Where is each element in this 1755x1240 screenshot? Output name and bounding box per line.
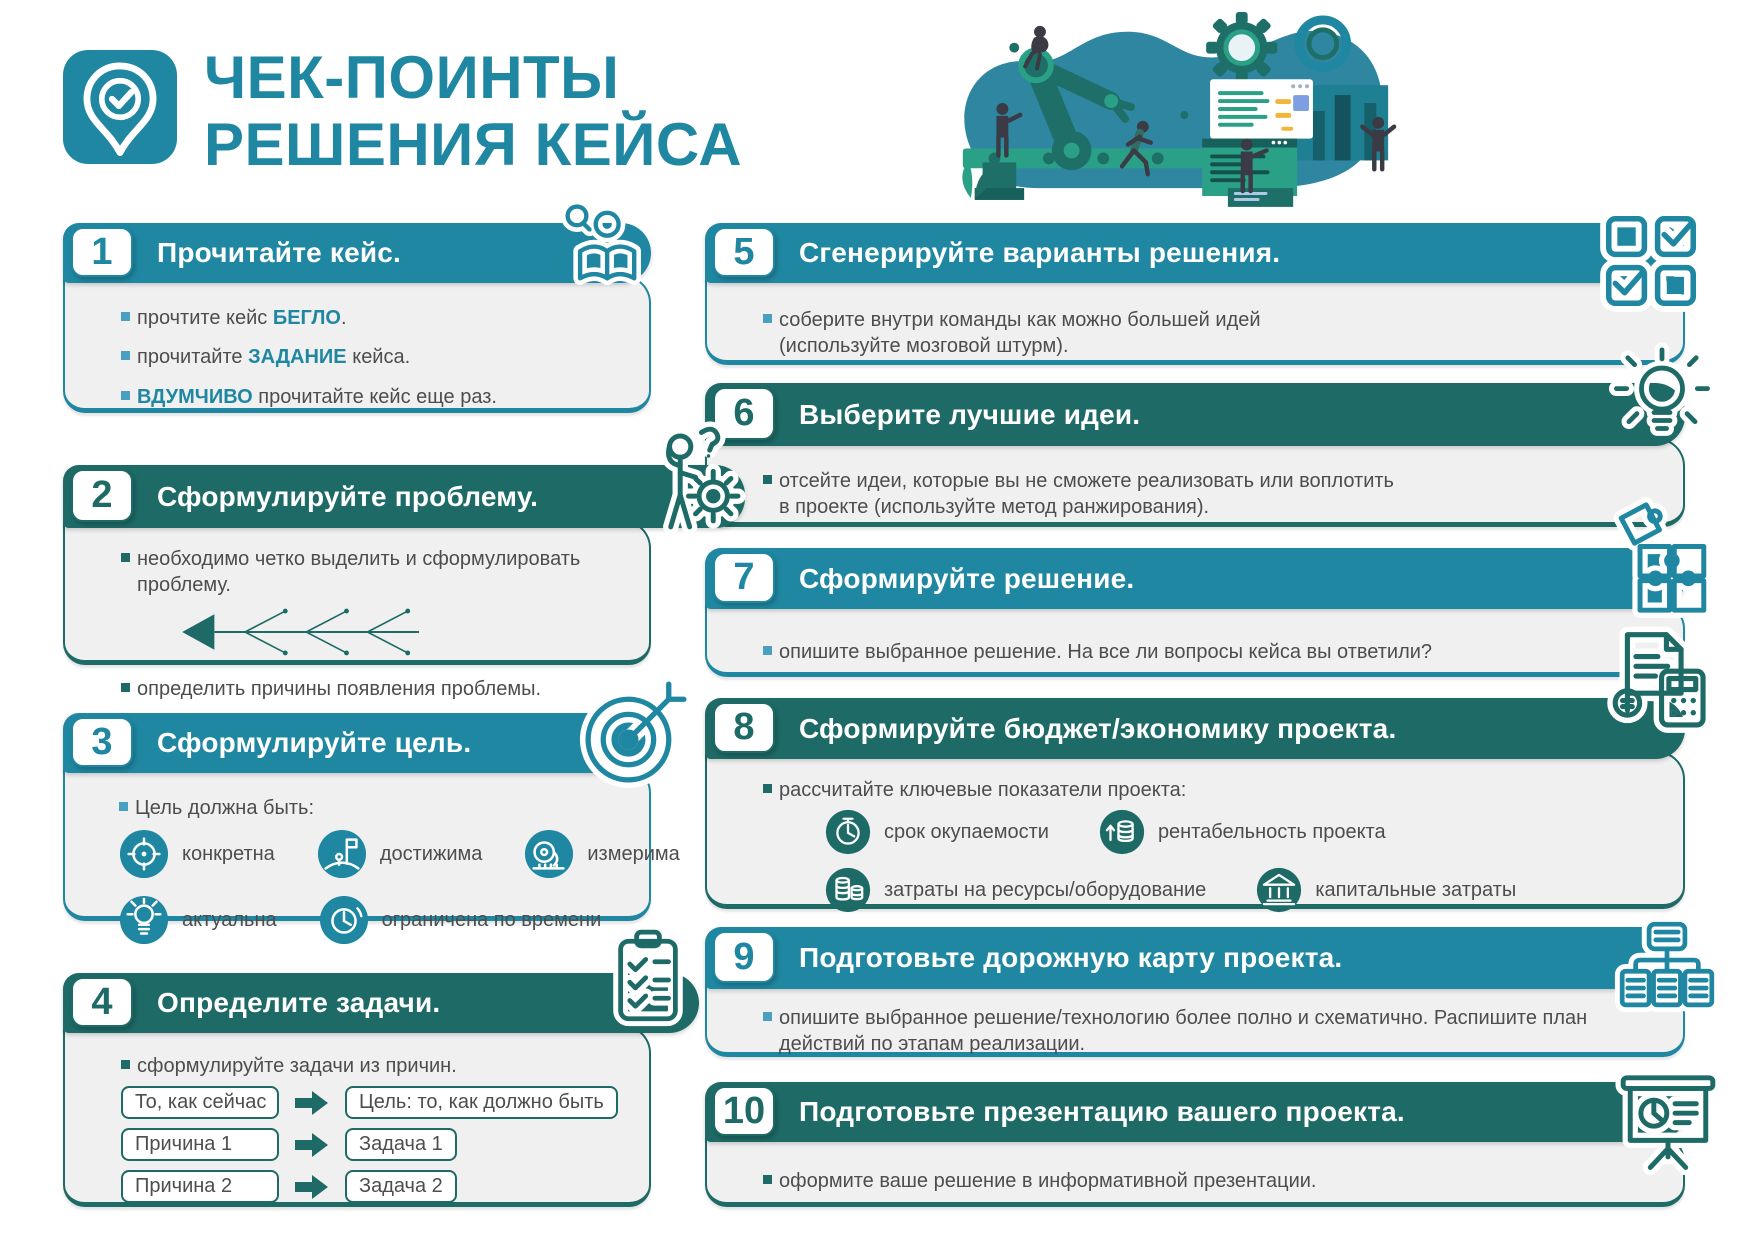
budget-item: затраты на ресурсы/оборудование xyxy=(825,867,1206,913)
budget-label: капитальные затраты xyxy=(1315,879,1516,902)
budget-label: срок окупаемости xyxy=(884,821,1049,844)
flag-on-mountain-icon xyxy=(317,829,367,879)
list-item: опишите выбранное решение. На все ли воп… xyxy=(763,639,1657,665)
card-title: Выберите лучшие идеи. xyxy=(799,399,1140,431)
card-content: опишите выбранное решение/технологию бол… xyxy=(763,1005,1657,1051)
card-number-badge: 4 xyxy=(71,977,133,1027)
card-title: Подготовьте дорожную карту проекта. xyxy=(799,942,1342,974)
stopwatch-icon xyxy=(825,809,871,855)
card-header: Выберите лучшие идеи. xyxy=(705,383,1685,446)
bullet-text: прочтите кейс БЕГЛО. xyxy=(137,305,347,331)
card-content: отсейте идеи, которые вы не сможете реал… xyxy=(763,468,1657,521)
smart-label: измерима xyxy=(587,843,679,866)
thinking-person-gear-icon xyxy=(633,423,751,541)
budget-row: затраты на ресурсы/оборудование капиталь… xyxy=(825,867,1657,913)
bullet-text: оформите ваше решение в информативной пр… xyxy=(779,1168,1316,1194)
flow-row: Причина 2 Задача 2 xyxy=(121,1170,623,1203)
bullet-square xyxy=(763,475,772,484)
bullet-square xyxy=(763,784,772,793)
card-4: Определите задачи. 4 сформулируйте задач… xyxy=(63,973,651,1207)
card-title: Сформулируйте проблему. xyxy=(157,481,538,513)
bullet-text: сформулируйте задачи из причин. xyxy=(137,1053,457,1079)
list-item: рассчитайте ключевые показатели проекта: xyxy=(763,777,1657,803)
budget-label: затраты на ресурсы/оборудование xyxy=(884,879,1206,902)
fishbone-diagram-wrap xyxy=(173,603,623,666)
presentation-board-icon xyxy=(1609,1066,1727,1184)
card-header: Сформируйте бюджет/экономику проекта. xyxy=(705,698,1685,759)
document-calculator-icon xyxy=(1603,620,1725,742)
card-9: Подготовьте дорожную карту проекта. 9 оп… xyxy=(705,927,1685,1057)
card-number: 1 xyxy=(91,231,112,274)
card-number-badge: 9 xyxy=(713,931,775,983)
budget-label: рентабельность проекта xyxy=(1158,821,1386,844)
bullet-square xyxy=(763,1175,772,1184)
header-illustration xyxy=(945,4,1400,207)
bullet-text: отсейте идеи, которые вы не сможете реал… xyxy=(779,468,1394,521)
bullet-square xyxy=(121,553,130,562)
infographic-poster: ЧЕК-ПОИНТЫ РЕШЕНИЯ КЕЙСА xyxy=(0,0,1755,1240)
card-number-badge: 7 xyxy=(713,552,775,603)
highlight-text: БЕГЛО xyxy=(273,307,341,329)
card-3: Сформулируйте цель. 3 Цель должна быть: … xyxy=(63,713,651,921)
card-title: Определите задачи. xyxy=(157,987,440,1019)
bullet-square xyxy=(121,1060,130,1069)
page-title-line2: РЕШЕНИЯ КЕЙСА xyxy=(204,111,742,178)
card-number: 5 xyxy=(733,231,754,274)
clipboard-checklist-icon xyxy=(591,923,705,1037)
smart-row: конкретна достижима измерима xyxy=(119,829,623,879)
coins-growth-icon xyxy=(1099,809,1145,855)
location-pin-check-icon xyxy=(63,50,177,164)
flow-box-from: То, как сейчас xyxy=(121,1086,279,1119)
bullet-square xyxy=(763,646,772,655)
list-item: ВДУМЧИВО прочитайте кейс еще раз. xyxy=(121,384,623,410)
card-content: необходимо четко выделить и сформулирова… xyxy=(121,546,623,659)
card-1: Прочитайте кейс. 1 прочтите кейс БЕГЛО. … xyxy=(63,223,651,413)
bullet-text: прочитайте ЗАДАНИЕ кейса. xyxy=(137,344,410,370)
list-item: Цель должна быть: xyxy=(119,795,623,821)
clock-icon xyxy=(319,895,369,945)
checkboxes-icon xyxy=(1585,195,1717,327)
card-title: Прочитайте кейс. xyxy=(157,237,401,269)
card-content: оформите ваше решение в информативной пр… xyxy=(763,1168,1657,1201)
smart-item: достижима xyxy=(317,829,483,879)
card-number-badge: 10 xyxy=(713,1086,775,1136)
card-7: Сформируйте решение. 7 опишите выбранное… xyxy=(705,548,1685,677)
list-item: сформулируйте задачи из причин. xyxy=(121,1053,623,1079)
card-5: Сгенерируйте варианты решения. 5 соберит… xyxy=(705,223,1685,365)
smart-row: актуальна ограничена по времени xyxy=(119,895,623,945)
card-2: Сформулируйте проблему. 2 необходимо чет… xyxy=(63,465,651,665)
bullet-square xyxy=(121,683,130,692)
bullet-text: ВДУМЧИВО прочитайте кейс еще раз. xyxy=(137,384,497,410)
bank-icon xyxy=(1256,867,1302,913)
card-number: 10 xyxy=(723,1090,765,1133)
smart-item: измерима xyxy=(524,829,679,879)
right-arrow-icon xyxy=(295,1090,329,1116)
list-item: прочитайте ЗАДАНИЕ кейса. xyxy=(121,344,623,370)
card-content: Цель должна быть: конкретна достижима из… xyxy=(119,795,623,915)
card-header: Сгенерируйте варианты решения. xyxy=(705,223,1685,283)
card-number-badge: 2 xyxy=(71,469,133,522)
flow-box-to: Задача 1 xyxy=(345,1128,457,1161)
card-content: сформулируйте задачи из причин. То, как … xyxy=(121,1053,623,1201)
card-10: Подготовьте презентацию вашего проекта. … xyxy=(705,1082,1685,1207)
flow-box-from: Причина 2 xyxy=(121,1170,279,1203)
coins-stack-icon xyxy=(825,867,871,913)
card-8: Сформируйте бюджет/экономику проекта. 8 … xyxy=(705,698,1685,909)
card-number: 9 xyxy=(733,936,754,979)
flow-row: Причина 1 Задача 1 xyxy=(121,1128,623,1161)
target-arrow-icon xyxy=(573,669,699,795)
budget-row: срок окупаемости рентабельность проекта xyxy=(825,809,1657,855)
card-number: 3 xyxy=(91,721,112,764)
card-header: Сформулируйте цель. xyxy=(63,713,651,773)
budget-item: рентабельность проекта xyxy=(1099,809,1386,855)
smart-label: достижима xyxy=(380,843,483,866)
right-arrow-icon xyxy=(295,1132,329,1158)
bullet-square xyxy=(763,1012,772,1021)
card-content: прочтите кейс БЕГЛО. прочитайте ЗАДАНИЕ … xyxy=(121,305,623,407)
flow-box-to: Цель: то, как должно быть xyxy=(345,1086,618,1119)
lightbulb-icon xyxy=(119,895,169,945)
list-item: опишите выбранное решение/технологию бол… xyxy=(763,1005,1657,1058)
card-content: соберите внутри команды как можно больше… xyxy=(763,307,1657,359)
card-number: 8 xyxy=(733,706,754,749)
card-header: Подготовьте презентацию вашего проекта. xyxy=(705,1082,1685,1142)
right-arrow-icon xyxy=(295,1174,329,1200)
list-item: оформите ваше решение в информативной пр… xyxy=(763,1168,1657,1194)
card-6: Выберите лучшие идеи. 6 отсейте идеи, ко… xyxy=(705,383,1685,527)
list-item: прочтите кейс БЕГЛО. xyxy=(121,305,623,331)
smart-label: актуальна xyxy=(182,909,277,932)
bullet-text: Цель должна быть: xyxy=(135,795,314,821)
card-number-badge: 8 xyxy=(713,702,775,753)
target-icon xyxy=(119,829,169,879)
page-title: ЧЕК-ПОИНТЫ РЕШЕНИЯ КЕЙСА xyxy=(204,44,742,178)
measuring-tape-icon xyxy=(524,829,574,879)
puzzle-pieces-icon xyxy=(1607,504,1725,622)
reading-person-icon xyxy=(551,193,655,297)
bullet-square xyxy=(763,314,772,323)
smart-item: актуальна xyxy=(119,895,277,945)
card-title: Подготовьте презентацию вашего проекта. xyxy=(799,1096,1405,1128)
smart-label: ограничена по времени xyxy=(382,909,602,932)
bullet-text: определить причины появления проблемы. xyxy=(137,676,541,702)
card-content: опишите выбранное решение. На все ли воп… xyxy=(763,639,1657,671)
card-title: Сформируйте решение. xyxy=(799,563,1134,595)
card-title: Сформируйте бюджет/экономику проекта. xyxy=(799,713,1396,745)
flow-box-from: Причина 1 xyxy=(121,1128,279,1161)
flow-row: То, как сейчас Цель: то, как должно быть xyxy=(121,1086,623,1119)
bullet-square xyxy=(119,802,128,811)
fishbone-arrow-diagram xyxy=(173,603,433,661)
list-item: необходимо четко выделить и сформулирова… xyxy=(121,546,623,599)
card-number-badge: 5 xyxy=(713,227,775,277)
highlight-text: ЗАДАНИЕ xyxy=(248,346,347,368)
smart-item: ограничена по времени xyxy=(319,895,602,945)
bullet-text: соберите внутри команды как можно больше… xyxy=(779,307,1261,360)
lightbulb-rays-icon xyxy=(1605,343,1719,457)
bullet-text: рассчитайте ключевые показатели проекта: xyxy=(779,777,1186,803)
bullet-text: опишите выбранное решение. На все ли воп… xyxy=(779,639,1432,665)
flow-box-to: Задача 2 xyxy=(345,1170,457,1203)
budget-item: капитальные затраты xyxy=(1256,867,1516,913)
list-item: отсейте идеи, которые вы не сможете реал… xyxy=(763,468,1657,521)
bullet-square xyxy=(121,351,130,360)
bullet-square xyxy=(121,391,130,400)
card-title: Сформулируйте цель. xyxy=(157,727,471,759)
page-title-line1: ЧЕК-ПОИНТЫ xyxy=(204,44,742,111)
card-number: 2 xyxy=(91,474,112,517)
budget-item: срок окупаемости xyxy=(825,809,1049,855)
card-number: 4 xyxy=(91,981,112,1024)
card-content: рассчитайте ключевые показатели проекта:… xyxy=(763,777,1657,903)
card-number-badge: 3 xyxy=(71,717,133,767)
bullet-text: необходимо четко выделить и сформулирова… xyxy=(137,546,580,599)
smart-label: конкретна xyxy=(182,843,275,866)
card-header: Подготовьте дорожную карту проекта. xyxy=(705,927,1685,989)
list-item: определить причины появления проблемы. xyxy=(121,676,623,702)
card-header: Сформируйте решение. xyxy=(705,548,1685,609)
bullet-square xyxy=(121,312,130,321)
list-item: соберите внутри команды как можно больше… xyxy=(763,307,1657,360)
card-number: 7 xyxy=(733,556,754,599)
card-number-badge: 1 xyxy=(71,227,133,277)
card-title: Сгенерируйте варианты решения. xyxy=(799,237,1280,269)
smart-item: конкретна xyxy=(119,829,275,879)
sitemap-icon xyxy=(1611,913,1723,1025)
bullet-text: опишите выбранное решение/технологию бол… xyxy=(779,1005,1587,1058)
highlight-text: ВДУМЧИВО xyxy=(137,386,253,408)
